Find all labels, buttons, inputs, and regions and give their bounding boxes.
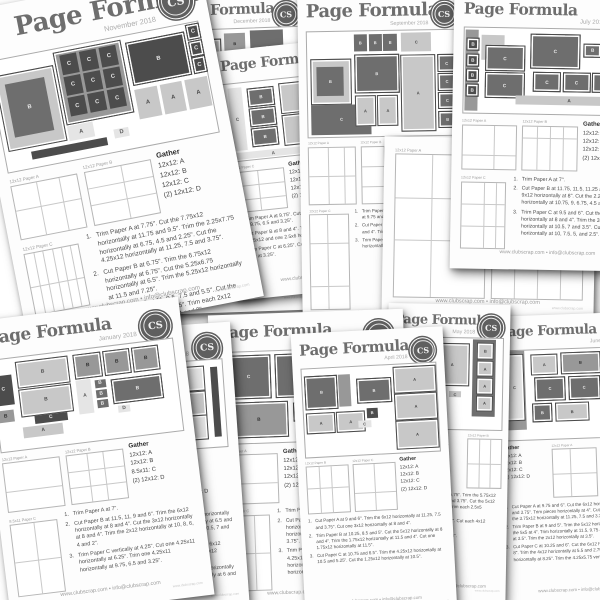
layout-block: B: [73, 352, 103, 380]
step-text: Cut Paper B at 11.75, 11.5, 11.25 and 9"…: [521, 186, 600, 209]
cut-line: [549, 127, 551, 171]
instruction-step: 1.Trim Paper A at 7".: [513, 176, 600, 185]
cut-diagram-grid: [308, 146, 357, 205]
gather-list: Gather12x12: A12x12: B12x12: C(2) 12x12:…: [399, 455, 444, 510]
instruction-steps: 1.Trim Paper A at 7".2.Cut Paper B at 11…: [512, 176, 600, 252]
cut-line: [374, 464, 377, 510]
cut-line: [430, 155, 433, 296]
layout-block: C: [592, 72, 600, 93]
cut-diagram-grid: [461, 124, 517, 171]
cut-line: [312, 285, 349, 287]
layout-block: C: [87, 91, 107, 113]
layout-block: A: [515, 95, 600, 106]
instruction-step: 3.Cut Paper C at 10.25 and 6". Cut the 6…: [506, 540, 600, 563]
layout-block: B: [95, 389, 107, 399]
page-april-2018: Page FormulaCSApril 2018BBAABAAAC12x12 P…: [291, 326, 458, 600]
layout-block: A: [23, 423, 64, 438]
layout-block: B: [317, 66, 344, 96]
page-january-2018: Page FormulaCSJanuary 2018CBBBBBABBBBCAB…: [0, 297, 215, 600]
cut-line: [36, 182, 47, 234]
layout-block: A: [393, 364, 437, 394]
instruction-steps: 1.Cut Paper A at 9 and 6". Trim the 6x12…: [308, 512, 449, 600]
cut-line: [68, 466, 124, 474]
cut-line: [462, 154, 515, 156]
layout-block: A: [476, 395, 493, 412]
cut-diagram-grid: [65, 449, 129, 505]
layout-block: D: [114, 126, 130, 138]
cut-diagram: 12x12 Paper B: [522, 119, 578, 172]
layout-block: B: [466, 68, 479, 81]
step-text: Cut Paper A at 9.75 and 6". Cut the 6x12…: [512, 499, 600, 522]
layout-block: B: [584, 43, 600, 57]
layout-diagram: CABCCBB: [499, 345, 600, 442]
layout-block: C: [568, 375, 600, 400]
cut-diagrams-row: Gather12x12: A12x12: B12x12: C(2) 12x12:…: [502, 441, 600, 500]
layout-block: B: [0, 410, 15, 424]
page-body: Page FormulaCSNovember 2018BCCCCCCCCCBCC…: [0, 0, 250, 328]
cut-line: [86, 454, 93, 501]
layout-block: [210, 367, 222, 437]
page-header: Page FormulaCSJune 2018: [498, 322, 600, 348]
cut-line: [103, 452, 110, 499]
cut-diagram: 12x12 Paper B: [82, 152, 161, 226]
layout-block: A: [377, 95, 399, 127]
layout-block: A: [76, 379, 95, 415]
cut-diagram: 12x12 Paper B: [65, 443, 129, 505]
layout-block: C: [0, 375, 14, 406]
step-number: 1.: [513, 176, 521, 183]
cut-line: [553, 472, 596, 475]
gather-item: (2) 12x12: D: [503, 473, 548, 482]
instruction-step: 3.Trim Paper C at 9.5 and 6". Cut the 6x…: [513, 209, 600, 239]
gather-list: Gather12x12: A12x12: B12x12: C(2) 12x12:…: [155, 138, 233, 212]
layout-block: A: [394, 392, 438, 422]
cut-line: [88, 176, 153, 190]
cut-diagram: 8.5x11 Paper C: [9, 513, 66, 598]
step-number: 1.: [277, 508, 286, 515]
cut-diagram-grid: [552, 447, 599, 498]
layout-block: B: [367, 408, 378, 418]
cut-line: [493, 126, 495, 170]
cut-diagram: 12x12 Paper A: [551, 442, 598, 498]
layout-block: B: [131, 345, 161, 373]
cut-line: [311, 243, 348, 245]
layout-block: A: [476, 360, 493, 377]
layout-block: C: [63, 74, 83, 96]
cut-diagrams-row: 12x12 Paper A12x12 Paper BGather12x12: A…: [461, 118, 600, 173]
cut-diagram: 12x12 Paper A: [461, 118, 517, 171]
cut-diagram-grid: [83, 159, 160, 226]
layout-diagram: BBBBBCAACACCCB: [306, 29, 459, 138]
gather-list: Gather12x12: A12x12: B8.5x11: C(2) 12x12…: [128, 435, 192, 497]
layout-block: A: [306, 412, 336, 435]
layout-block: C: [83, 70, 103, 92]
layout-block: D: [118, 405, 131, 413]
cut-diagram: 12x12 Paper A: [1, 450, 65, 512]
layout-block: [338, 374, 352, 406]
layout-block: C: [59, 53, 79, 75]
cut-line: [70, 246, 83, 306]
gather-item: (2) 12x12: D: [582, 154, 600, 163]
layout-block: A: [476, 378, 493, 395]
instruction-step: 1.Cut Paper A at 9.75 and 6". Cut the 6x…: [504, 499, 600, 522]
layout-block: B: [466, 84, 479, 97]
cut-diagram: 12x12 Paper A: [9, 166, 88, 240]
cut-line: [16, 198, 81, 212]
layout-block: B: [125, 32, 192, 86]
layout-block: C: [79, 49, 99, 71]
cut-diagram-grid: [10, 173, 87, 240]
cut-line: [307, 486, 348, 489]
step-text: Trim Paper B at 9 and 5". Trim the 5x12 …: [512, 520, 600, 543]
cut-line: [495, 183, 497, 248]
layout-block: A: [134, 85, 162, 119]
layout-block: A: [530, 354, 558, 376]
cut-diagram: 12x12 Paper C: [460, 175, 507, 249]
cut-line: [483, 182, 485, 247]
instruction-steps: 1.Cut Paper A at 9.75 and 6". Cut the 6x…: [504, 499, 600, 589]
cut-line: [536, 126, 538, 170]
layout-block: B: [304, 375, 339, 410]
cut-line: [70, 481, 126, 489]
cut-line: [310, 175, 356, 177]
cut-diagram-grid: [522, 125, 578, 172]
page-title: Page Formula: [464, 0, 600, 19]
layout-block: C: [99, 45, 119, 67]
instructions-row: 1.Cut Paper A at 9.75 and 6". Cut the 6x…: [504, 499, 600, 589]
cut-line: [319, 467, 322, 513]
layout-block: C: [401, 33, 431, 52]
layout-block: B: [249, 105, 278, 127]
layout-block: B: [353, 35, 367, 52]
layout-block: C: [530, 34, 581, 69]
cut-diagram-grid: [23, 243, 90, 316]
cut-diagram-grid: [2, 457, 66, 513]
layout-diagram: BBBBDCCCBBCCCA: [462, 26, 600, 116]
page-body: Page FormulaCSJune 2018CABCCBBGather12x1…: [498, 322, 600, 598]
layout-block: C: [67, 95, 87, 117]
layout-block: A: [185, 76, 213, 110]
cut-diagram-grid: [10, 519, 67, 597]
layout-block: B: [97, 399, 109, 409]
layout-diagram: BBAABAAAC: [300, 362, 441, 459]
layout-block: C: [562, 72, 590, 93]
cut-line: [258, 171, 263, 210]
layout-diagram: CBBBBBABBBBCABD: [0, 337, 184, 453]
cut-diagram-grid: [305, 465, 351, 515]
gather-item: (2) 12x12: D: [401, 484, 444, 493]
gather-list: Gather12x12: A12x12: B12x12: C(2) 12x12:…: [502, 444, 548, 500]
layout-block: A: [159, 80, 187, 114]
layout-block: B: [467, 38, 480, 51]
gather-list: Gather12x12: A12x12: B12x12: C(2) 12x12:…: [582, 120, 600, 173]
layout-block: B: [251, 125, 280, 147]
layout-block: C: [107, 87, 127, 109]
step-text: Trim Paper C at 9.5 and 6". Cut the 6x12…: [521, 209, 600, 239]
page-header: Page FormulaCSSeptember 2018: [306, 1, 458, 29]
cut-line: [468, 464, 501, 466]
cut-line: [120, 166, 131, 218]
layout-block: B: [102, 348, 132, 376]
cut-diagram-grid: [309, 214, 350, 311]
instructions-row: 12x12 Paper C1.Trim Paper A at 7".2.Cut …: [460, 175, 600, 251]
layout-block: A: [396, 419, 440, 450]
layout-block: B: [383, 34, 397, 51]
page-header: Page FormulaCSApril 2018: [299, 337, 437, 366]
cut-diagrams-row: 12x12 Paper B12x12 Paper CGather12x12: A…: [305, 455, 444, 515]
layout-block: A: [355, 95, 377, 127]
collage-canvas: Page FormulaCSNovember 2018BCCCCCCCCCBCC…: [0, 0, 600, 600]
layout-block: B: [356, 377, 393, 404]
instruction-step: 2.Trim Paper B at 9 and 5". Trim the 5x1…: [505, 520, 600, 543]
cut-diagram: 12x12 Paper C: [22, 236, 91, 316]
layout-block: B: [354, 54, 400, 93]
cut-diagram: 12x12 Paper C: [352, 457, 398, 512]
layout-block: C: [103, 66, 123, 88]
cut-diagram-grid: [467, 439, 502, 490]
cut-diagram-grid: [352, 462, 398, 512]
layout-block: A: [400, 54, 436, 132]
cut-line: [91, 192, 156, 206]
page-header: Page FormulaCSJuly 2018: [464, 0, 600, 26]
layout-block: B: [111, 373, 165, 404]
cut-line: [327, 215, 330, 309]
cut-diagram: 12x12 Paper C: [309, 209, 350, 311]
page-body: Page FormulaCSApril 2018BBAABAAAC12x12 P…: [299, 337, 450, 600]
cut-diagram: 12x12 Paper B: [305, 460, 351, 515]
step-text: Trim Paper A at 7".: [522, 176, 600, 185]
cut-line: [58, 178, 69, 230]
layout-block: B: [532, 402, 553, 422]
layout-block: C: [191, 55, 208, 74]
layout-block: B: [466, 53, 479, 66]
layout-block: C: [449, 391, 461, 398]
cut-line: [7, 485, 63, 493]
page-body: Page FormulaCSJuly 2018BBBBDCCCBBCCCA12x…: [460, 0, 600, 262]
layout-block: C: [533, 71, 561, 92]
instructions-row: 1.Cut Paper A at 9 and 6". Trim the 6x12…: [308, 512, 449, 600]
layout-block: B: [94, 379, 106, 389]
layout-block: B: [560, 351, 600, 375]
layout-block: C: [534, 376, 567, 401]
cut-diagram: 12x12 Paper A: [308, 141, 357, 205]
cs-badge-icon: CS: [273, 1, 300, 28]
cut-diagram-grid: [460, 181, 507, 249]
cut-line: [331, 467, 334, 513]
layout-block: B: [555, 401, 590, 421]
step-text: Cut Paper C at 10.25 and 6". Cut the 6x1…: [513, 540, 600, 563]
page-body: Page FormulaCSJanuary 2018CBBBBBABBBBCAB…: [0, 308, 203, 600]
layout-block: B: [247, 86, 276, 108]
layout-block: C: [358, 421, 372, 429]
layout-block: B: [477, 343, 494, 360]
layout-block: C: [485, 45, 526, 72]
page-july-2018: Page FormulaCSJuly 2018BBBBDCCCBBCCCA12x…: [450, 0, 600, 272]
instruction-step: 2.Cut Paper B at 11.75, 11.5, 11.25 and …: [513, 186, 600, 209]
cut-line: [563, 127, 565, 171]
layout-block: A: [67, 122, 95, 141]
cut-diagram: 12x12 Paper B: [467, 433, 503, 489]
layout-block: B: [368, 34, 382, 51]
